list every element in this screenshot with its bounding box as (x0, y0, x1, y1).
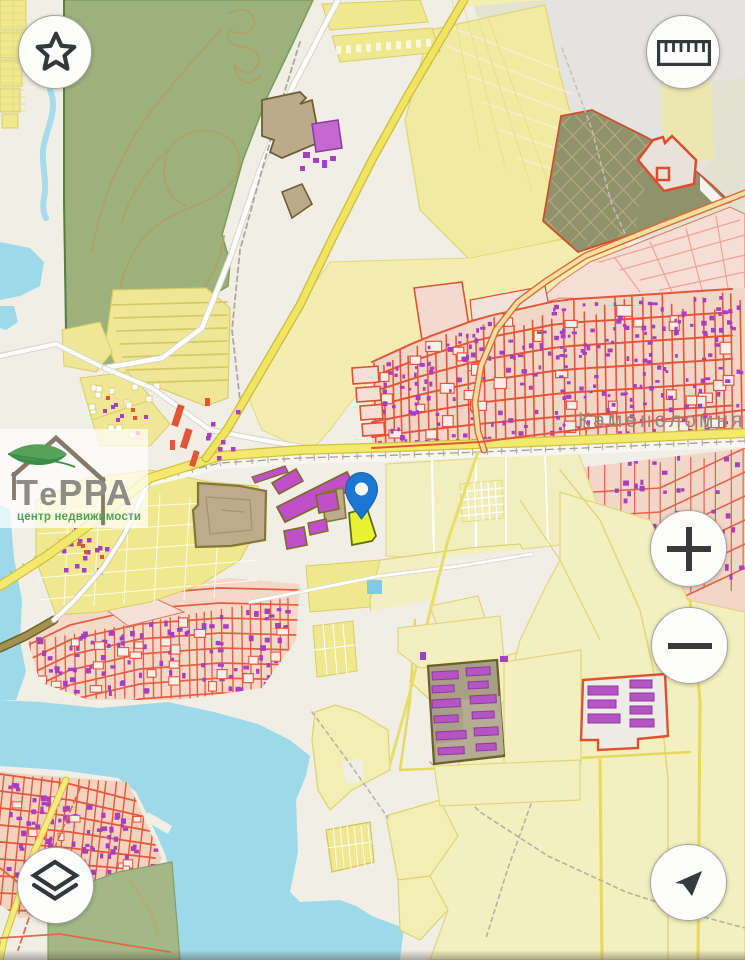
svg-text:Каменоломня: Каменоломня (578, 409, 745, 432)
